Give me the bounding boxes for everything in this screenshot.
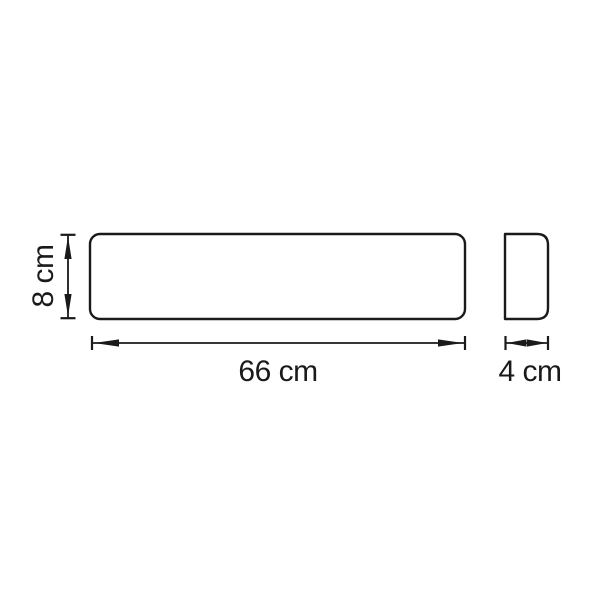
depth-arrowhead-right [527, 339, 547, 346]
depth-arrowhead-left [507, 339, 527, 346]
front-view-outline [90, 234, 465, 319]
depth-dimension-label: 4 cm [498, 355, 561, 388]
width-dimension: 66 cm [92, 336, 465, 388]
side-view-outline [505, 234, 548, 319]
dimension-drawing-page: 8 cm 66 cm 4 cm [0, 0, 600, 600]
depth-dimension: 4 cm [498, 336, 561, 388]
height-arrowhead-up [64, 237, 71, 260]
height-dimension-label: 8 cm [27, 244, 60, 307]
height-dimension: 8 cm [27, 235, 76, 318]
width-arrowhead-right [438, 339, 463, 346]
width-dimension-label: 66 cm [238, 355, 317, 388]
height-arrowhead-down [64, 294, 71, 317]
width-arrowhead-left [94, 339, 119, 346]
dimension-drawing: 8 cm 66 cm 4 cm [0, 0, 600, 600]
